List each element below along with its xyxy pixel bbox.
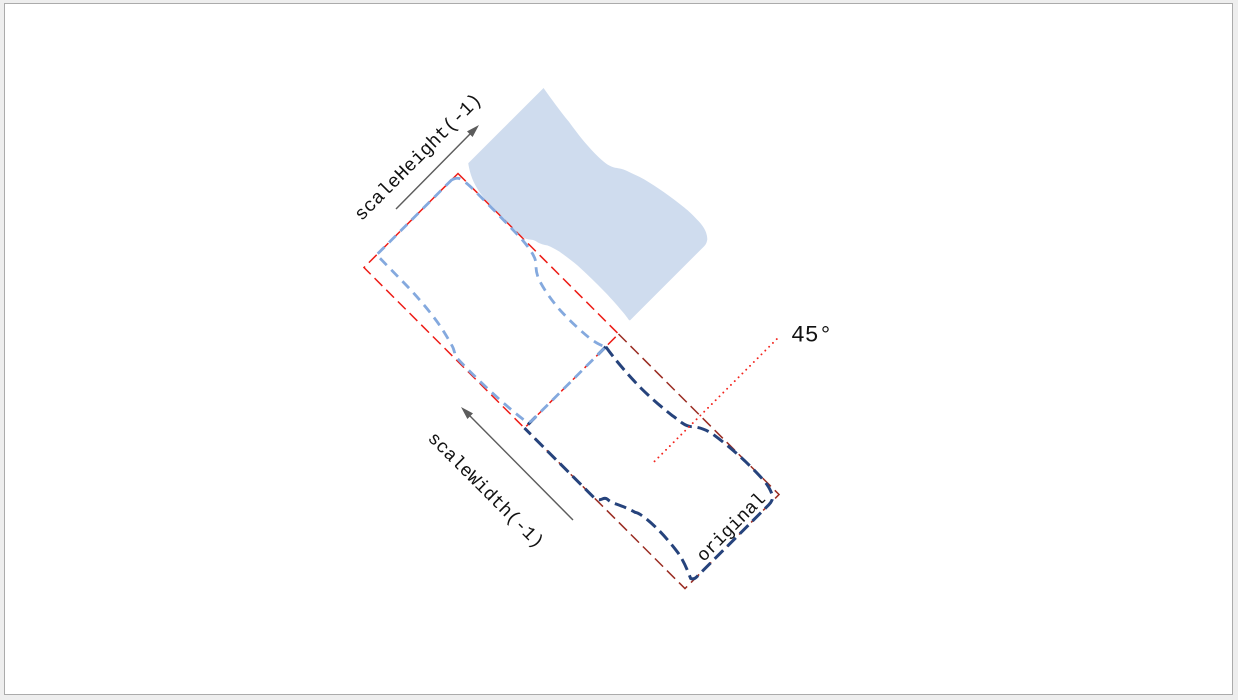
svg-text:45°: 45° — [791, 323, 832, 349]
